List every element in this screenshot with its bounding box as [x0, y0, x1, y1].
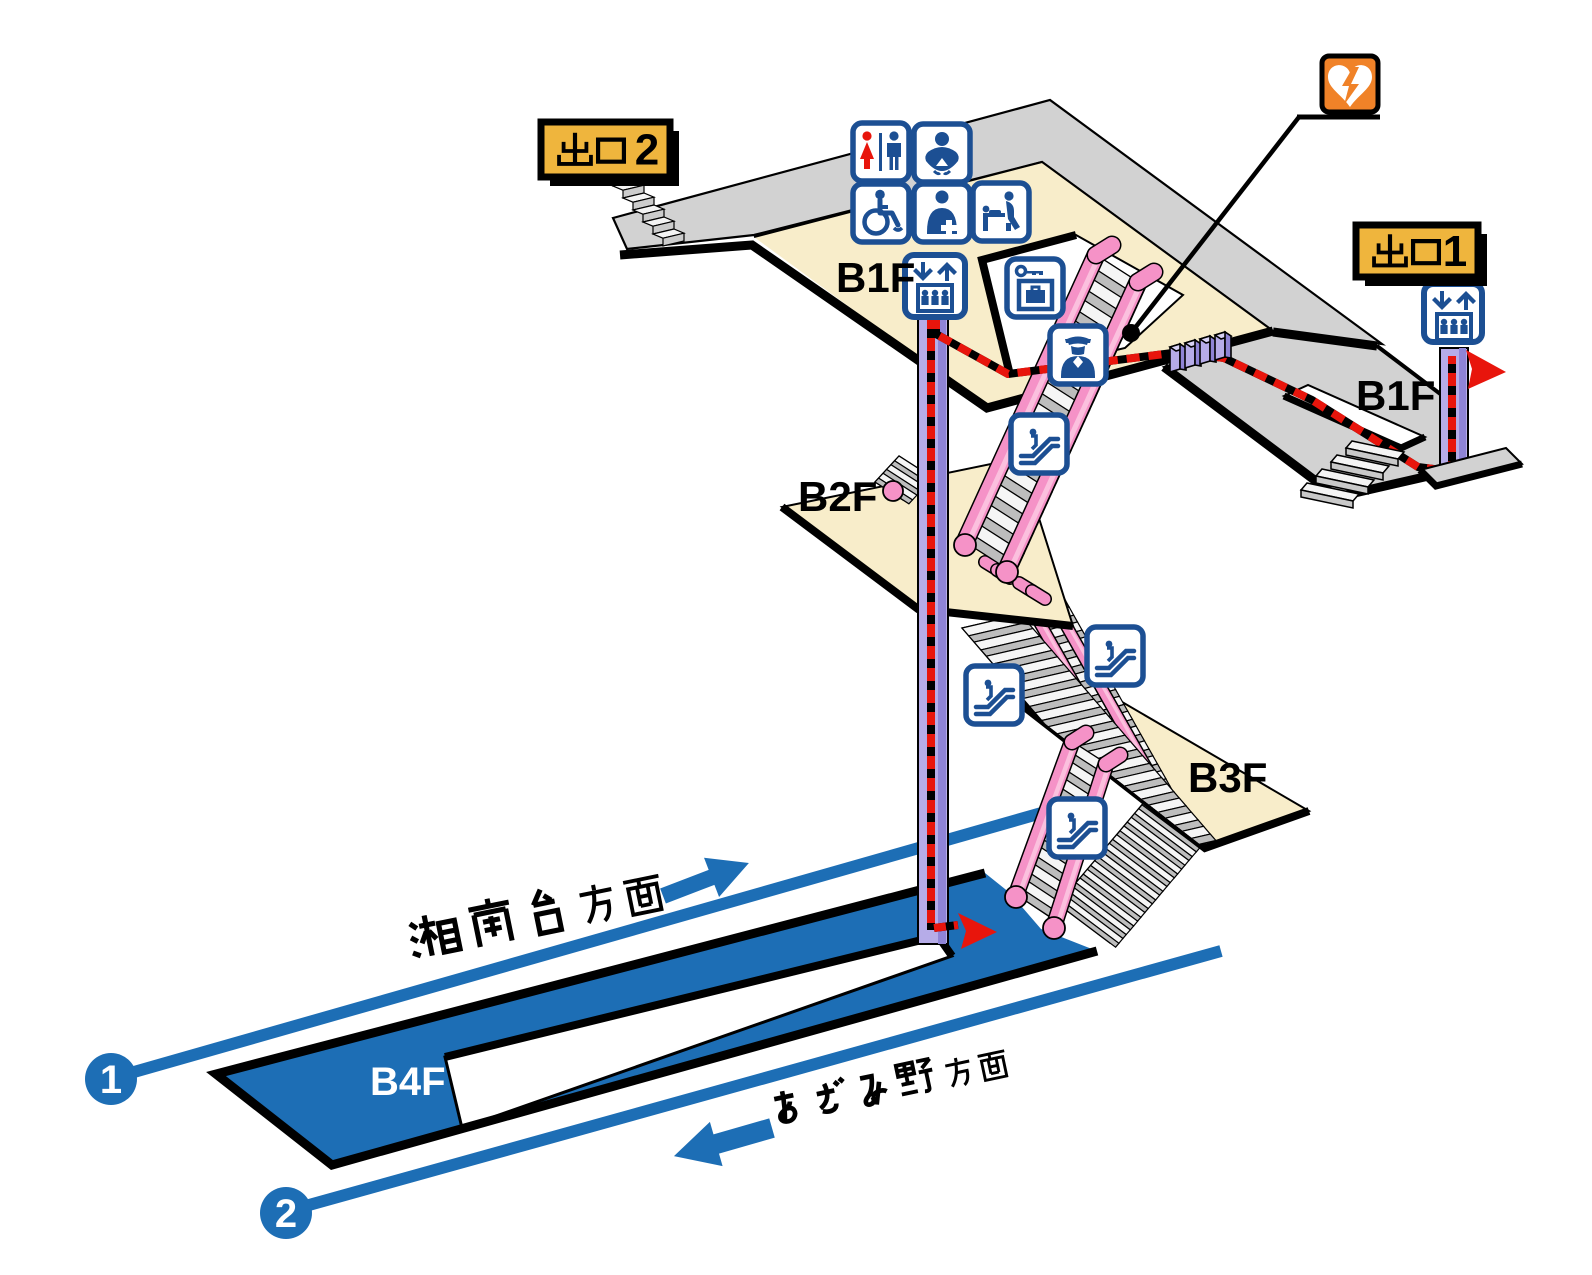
svg-text:B1F: B1F — [836, 254, 915, 301]
svg-text:B2F: B2F — [798, 473, 877, 520]
svg-text:1: 1 — [1443, 227, 1467, 276]
svg-text:1: 1 — [100, 1058, 122, 1102]
svg-text:B4F: B4F — [370, 1060, 446, 1104]
svg-text:2: 2 — [275, 1192, 297, 1236]
svg-text:B3F: B3F — [1188, 754, 1267, 801]
svg-text:2: 2 — [635, 126, 659, 175]
svg-text:B1F: B1F — [1356, 372, 1435, 419]
